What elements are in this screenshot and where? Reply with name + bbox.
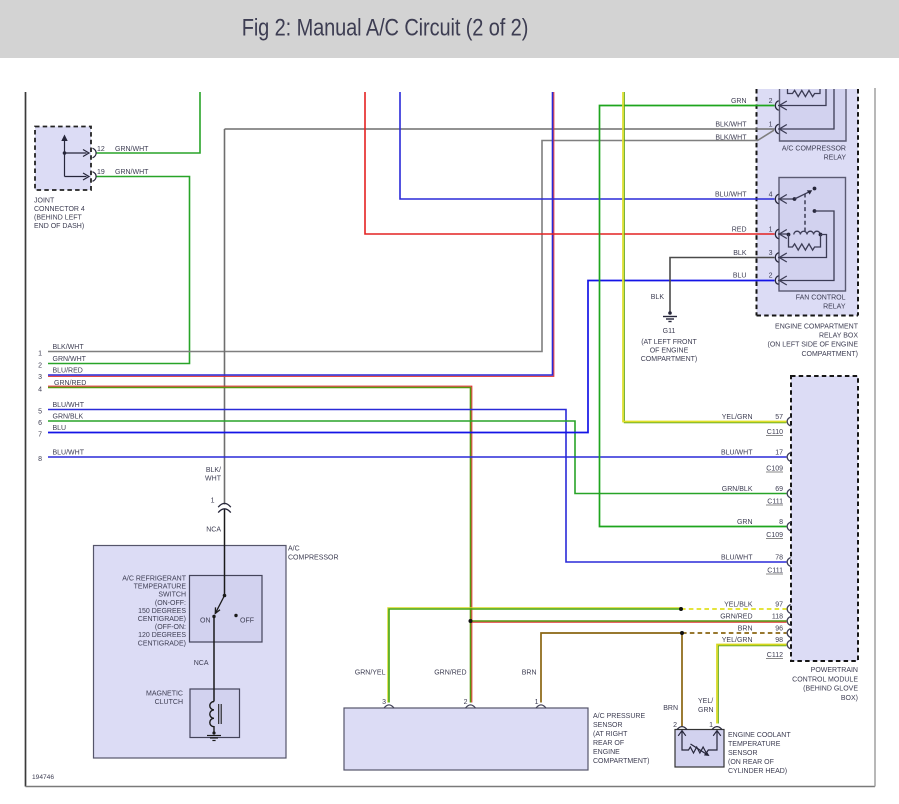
svg-text:ENGINE COMPARTMENT: ENGINE COMPARTMENT <box>775 323 859 330</box>
svg-text:GRN/BLK: GRN/BLK <box>53 414 84 421</box>
svg-text:COMPARTMENT): COMPARTMENT) <box>593 758 650 765</box>
svg-text:(BEHIND LEFT: (BEHIND LEFT <box>34 215 83 222</box>
svg-text:BLU: BLU <box>733 273 747 280</box>
svg-text:19: 19 <box>97 169 105 176</box>
svg-text:2: 2 <box>464 699 468 706</box>
svg-text:REAR OF: REAR OF <box>593 740 624 747</box>
svg-text:3: 3 <box>382 699 386 706</box>
svg-text:(ON LEFT SIDE OF ENGINE: (ON LEFT SIDE OF ENGINE <box>768 342 859 349</box>
svg-text:C110: C110 <box>767 429 783 436</box>
svg-text:(ON REAR OF: (ON REAR OF <box>728 759 774 766</box>
svg-text:BLK/WHT: BLK/WHT <box>53 344 85 351</box>
svg-text:GRN: GRN <box>737 519 753 526</box>
svg-text:RELAY BOX: RELAY BOX <box>819 333 858 340</box>
svg-text:98: 98 <box>775 637 783 644</box>
svg-text:SWITCH: SWITCH <box>158 592 186 599</box>
svg-text:BLU/WHT: BLU/WHT <box>721 555 753 562</box>
svg-text:BRN: BRN <box>522 670 537 677</box>
svg-text:BLU/WHT: BLU/WHT <box>53 450 85 457</box>
svg-text:194746: 194746 <box>32 774 54 781</box>
svg-text:C112: C112 <box>767 652 783 659</box>
svg-text:YEL/BLK: YEL/BLK <box>724 602 753 609</box>
svg-text:2: 2 <box>769 98 773 105</box>
svg-text:C109: C109 <box>766 532 783 539</box>
svg-text:69: 69 <box>775 486 783 493</box>
svg-text:A/C COMPRESSOR: A/C COMPRESSOR <box>782 145 846 152</box>
svg-text:G11: G11 <box>663 328 676 335</box>
svg-text:MAGNETIC: MAGNETIC <box>146 691 183 698</box>
svg-text:3: 3 <box>38 374 42 381</box>
svg-text:BLK: BLK <box>733 250 747 257</box>
svg-text:150 DEGREES: 150 DEGREES <box>138 608 186 615</box>
svg-text:C111: C111 <box>767 499 783 506</box>
svg-text:5: 5 <box>38 409 42 416</box>
svg-text:BLU/WHT: BLU/WHT <box>715 192 747 199</box>
svg-text:RELAY: RELAY <box>823 304 846 311</box>
svg-text:BLK/WHT: BLK/WHT <box>715 122 747 129</box>
svg-text:3: 3 <box>769 250 773 257</box>
svg-text:2: 2 <box>673 722 677 729</box>
svg-text:YEL/: YEL/ <box>698 698 713 705</box>
svg-text:C111: C111 <box>767 568 783 575</box>
svg-text:Fig 2: Manual A/C Circuit (2 o: Fig 2: Manual A/C Circuit (2 of 2) <box>242 14 529 41</box>
svg-text:GRN/RED: GRN/RED <box>54 380 86 387</box>
svg-text:ENGINE COOLANT: ENGINE COOLANT <box>728 732 791 739</box>
svg-text:POWERTRAIN: POWERTRAIN <box>811 667 858 674</box>
svg-text:GRN/RED: GRN/RED <box>434 670 466 677</box>
svg-text:CYLINDER HEAD): CYLINDER HEAD) <box>728 768 787 775</box>
svg-text:CLUTCH: CLUTCH <box>155 699 183 706</box>
svg-text:TEMPERATURE: TEMPERATURE <box>134 584 187 591</box>
svg-text:GRN/WHT: GRN/WHT <box>53 356 87 363</box>
svg-text:SENSOR: SENSOR <box>593 722 623 729</box>
svg-text:(ON-OFF:: (ON-OFF: <box>155 600 186 607</box>
svg-text:NCA: NCA <box>194 660 209 667</box>
svg-text:CENTIGRADE): CENTIGRADE) <box>138 616 186 623</box>
svg-text:A/C REFRIGERANT: A/C REFRIGERANT <box>122 576 187 583</box>
svg-text:BLK: BLK <box>651 294 665 301</box>
svg-text:1: 1 <box>211 498 215 505</box>
svg-text:GRN/YEL: GRN/YEL <box>355 670 386 677</box>
svg-text:78: 78 <box>775 555 783 562</box>
svg-text:TEMPERATURE: TEMPERATURE <box>728 741 781 748</box>
svg-text:6: 6 <box>38 420 42 427</box>
svg-text:C109: C109 <box>766 466 783 473</box>
svg-text:BLK/WHT: BLK/WHT <box>715 135 747 142</box>
svg-text:NCA: NCA <box>206 527 221 534</box>
svg-text:GRN: GRN <box>698 707 714 714</box>
svg-text:1: 1 <box>709 722 713 729</box>
svg-text:BLU/WHT: BLU/WHT <box>53 402 85 409</box>
svg-text:SENSOR: SENSOR <box>728 750 758 757</box>
svg-text:YEL/GRN: YEL/GRN <box>722 637 753 644</box>
svg-text:8: 8 <box>779 519 783 526</box>
svg-text:YEL/GRN: YEL/GRN <box>722 414 753 421</box>
svg-text:GRN/RED: GRN/RED <box>720 614 752 621</box>
svg-text:7: 7 <box>38 432 42 439</box>
svg-text:(BEHIND GLOVE: (BEHIND GLOVE <box>803 686 858 693</box>
svg-text:2: 2 <box>769 273 773 280</box>
svg-text:4: 4 <box>769 192 773 199</box>
svg-text:OF ENGINE: OF ENGINE <box>650 347 689 354</box>
svg-text:4: 4 <box>38 387 42 394</box>
svg-text:96: 96 <box>775 626 783 633</box>
svg-text:120 DEGREES: 120 DEGREES <box>138 632 186 639</box>
svg-text:1: 1 <box>769 122 773 129</box>
svg-text:JOINT: JOINT <box>34 198 55 205</box>
svg-text:(OFF-ON:: (OFF-ON: <box>155 624 186 631</box>
svg-text:BRN: BRN <box>738 626 753 633</box>
svg-text:2: 2 <box>38 363 42 370</box>
svg-text:1: 1 <box>769 227 773 234</box>
svg-text:CONTROL MODULE: CONTROL MODULE <box>792 676 858 683</box>
svg-text:CONNECTOR 4: CONNECTOR 4 <box>34 206 85 213</box>
svg-text:12: 12 <box>97 146 105 153</box>
svg-text:17: 17 <box>775 450 783 457</box>
svg-text:ON: ON <box>200 618 211 625</box>
svg-text:FAN CONTROL: FAN CONTROL <box>796 295 846 302</box>
svg-text:RELAY: RELAY <box>824 155 847 162</box>
svg-text:BLU/RED: BLU/RED <box>53 368 83 375</box>
svg-text:BLK/: BLK/ <box>206 467 221 474</box>
svg-text:COMPARTMENT): COMPARTMENT) <box>641 356 698 363</box>
svg-text:CENTIGRADE): CENTIGRADE) <box>138 640 186 647</box>
svg-text:1: 1 <box>535 699 539 706</box>
svg-text:GRN/WHT: GRN/WHT <box>115 169 149 176</box>
svg-text:118: 118 <box>772 614 783 621</box>
svg-text:(AT LEFT FRONT: (AT LEFT FRONT <box>641 339 697 346</box>
svg-text:97: 97 <box>775 602 783 609</box>
svg-text:COMPARTMENT): COMPARTMENT) <box>801 351 858 358</box>
svg-text:BLU: BLU <box>53 425 67 432</box>
svg-text:COMPRESSOR: COMPRESSOR <box>288 555 339 562</box>
svg-text:END OF DASH): END OF DASH) <box>34 223 84 230</box>
svg-text:GRN/BLK: GRN/BLK <box>722 486 753 493</box>
svg-text:BRN: BRN <box>663 705 678 712</box>
svg-text:BLU/WHT: BLU/WHT <box>721 450 753 457</box>
svg-text:8: 8 <box>38 456 42 463</box>
svg-text:A/C PRESSURE: A/C PRESSURE <box>593 713 645 720</box>
svg-text:WHT: WHT <box>205 476 222 483</box>
svg-text:57: 57 <box>775 414 783 421</box>
svg-text:ENGINE: ENGINE <box>593 749 620 756</box>
svg-text:A/C: A/C <box>288 546 300 553</box>
svg-text:RED: RED <box>732 227 747 234</box>
svg-text:GRN: GRN <box>731 98 747 105</box>
svg-text:GRN/WHT: GRN/WHT <box>115 146 149 153</box>
svg-text:BOX): BOX) <box>841 695 858 702</box>
svg-text:OFF: OFF <box>240 618 254 625</box>
svg-text:(AT RIGHT: (AT RIGHT <box>593 731 628 738</box>
svg-text:1: 1 <box>38 351 42 358</box>
